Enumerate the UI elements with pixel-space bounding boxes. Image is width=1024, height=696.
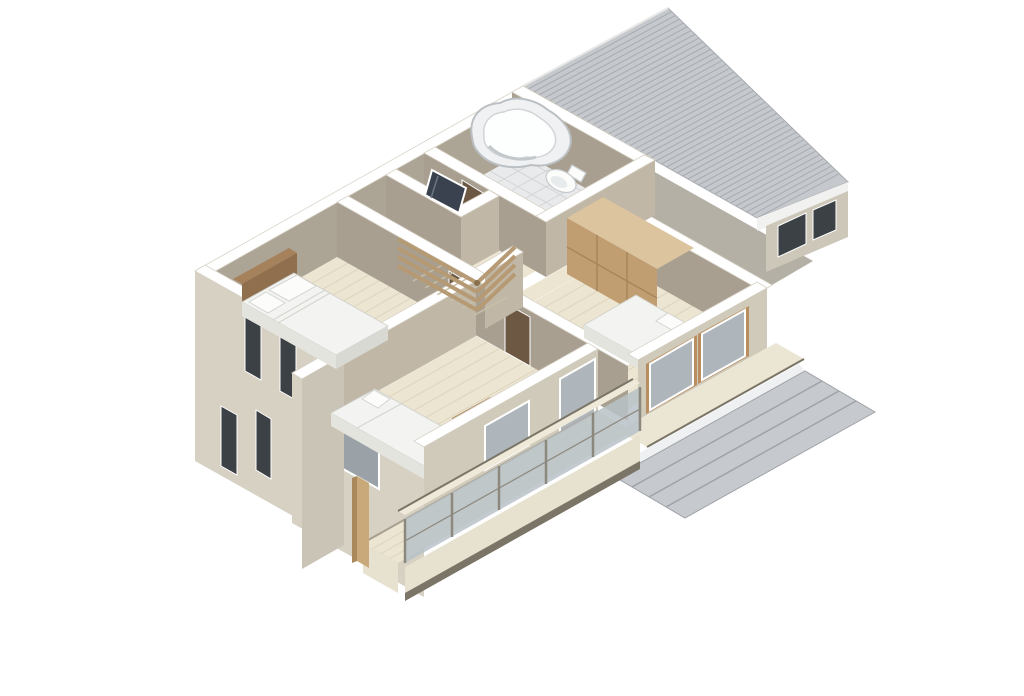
newel-post [474,280,480,286]
render-canvas [0,0,1024,696]
slot-window-3 [221,406,237,475]
balcony-wood-post-side [352,476,357,563]
jog-wall-face [302,355,344,569]
floorplan-3d-scene [0,0,1024,696]
slot-window-4 [256,410,271,479]
balcony-wood-post [357,476,369,568]
